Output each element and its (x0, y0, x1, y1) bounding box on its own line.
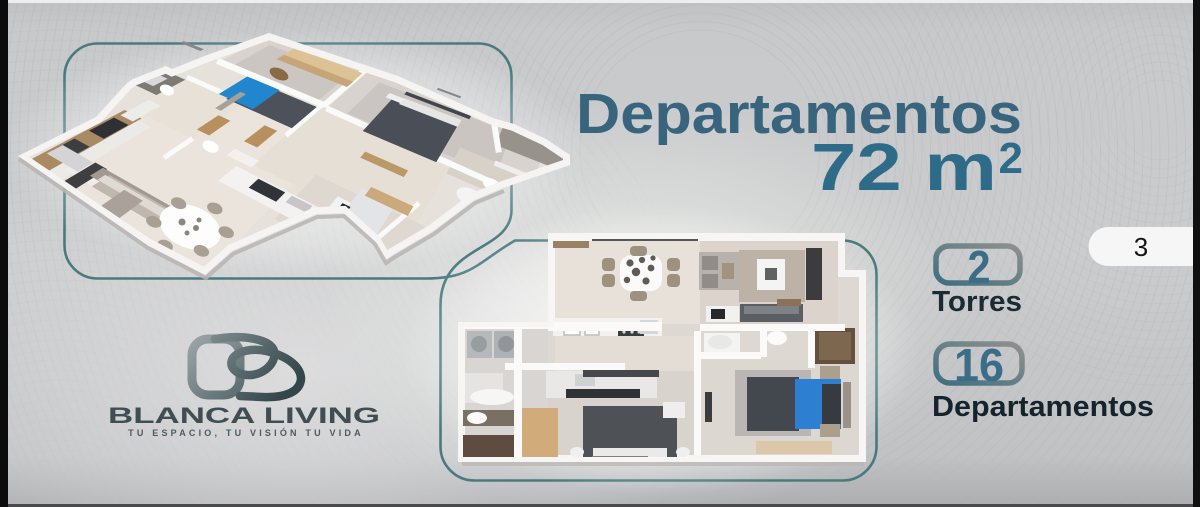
svg-text:BLANCA LIVING: BLANCA LIVING (108, 403, 380, 428)
svg-text:Torres: Torres (932, 286, 1022, 318)
svg-text:3: 3 (1134, 232, 1148, 262)
svg-text:72 m: 72 m (811, 130, 997, 205)
svg-text:16: 16 (954, 339, 1004, 391)
svg-text:2: 2 (999, 134, 1023, 183)
svg-text:TU ESPACIO, TU VISIÓN TU VIDA: TU ESPACIO, TU VISIÓN TU VIDA (128, 427, 364, 438)
svg-text:Departamentos: Departamentos (932, 391, 1154, 423)
